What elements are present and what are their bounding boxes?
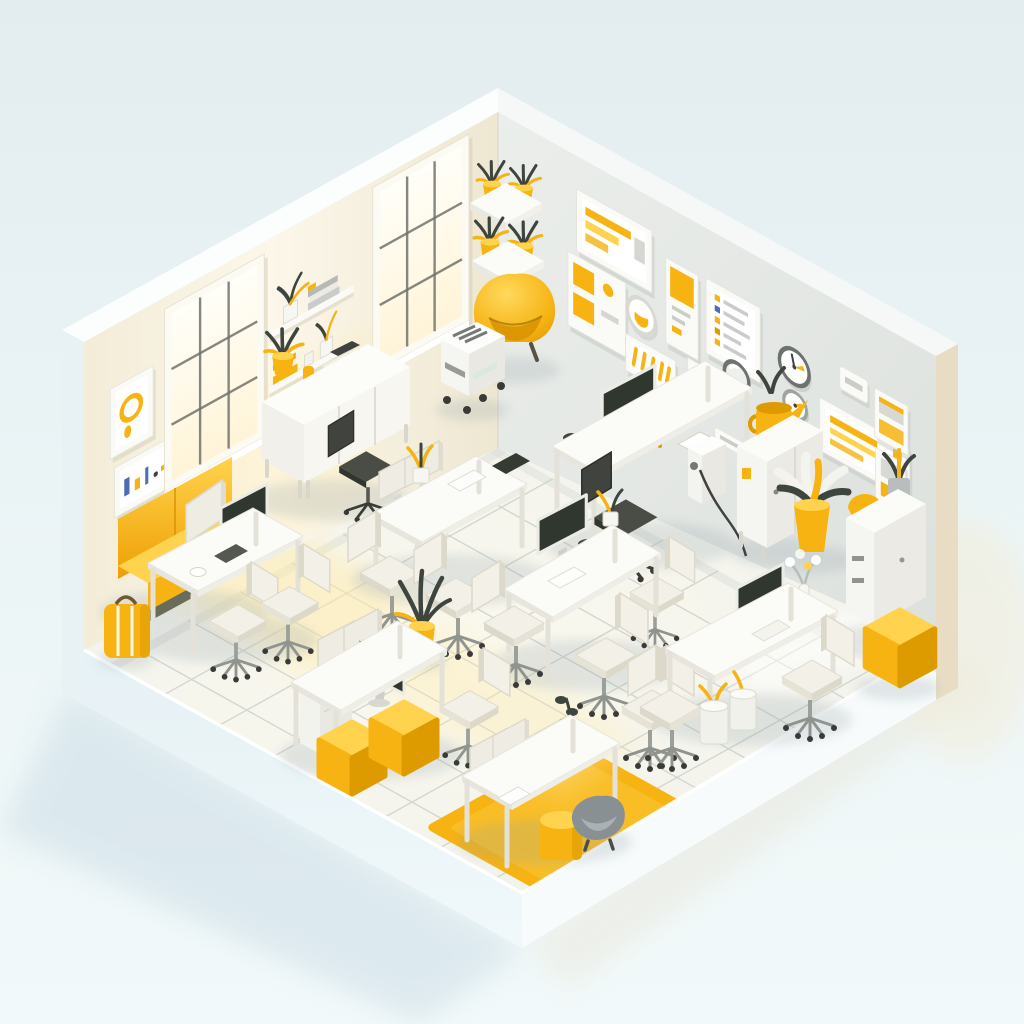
bag-yellow [104,597,150,658]
ottoman-cube [371,702,437,774]
pc-tower [688,436,726,504]
cabinet-badge [742,468,751,479]
isometric-office-scene [0,0,1024,1024]
office-illustration [0,0,1024,1024]
wall-end-cap-right [936,344,958,700]
wall-end-cap-left [62,330,84,705]
ottoman-cube [865,610,934,686]
mouse [190,568,206,577]
